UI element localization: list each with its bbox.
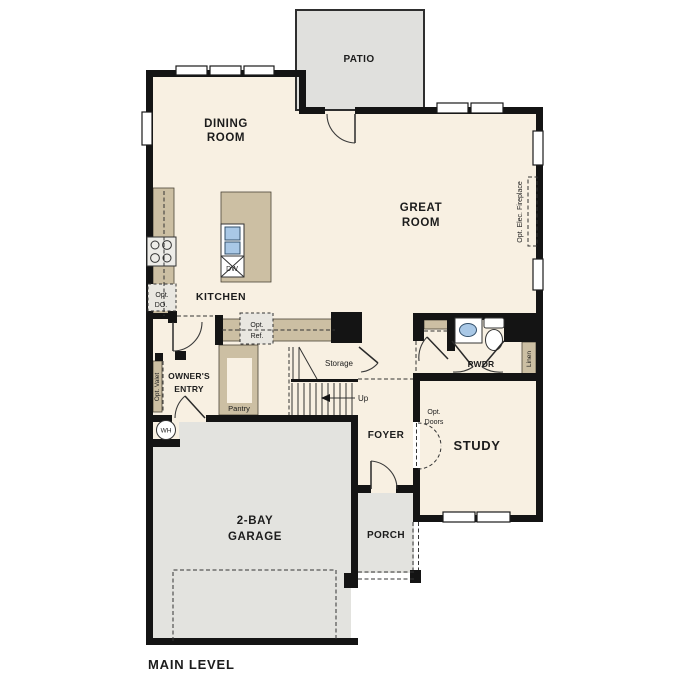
wall-owners-stub-b — [175, 351, 186, 360]
opt-refrigerator-label-2: Ref. — [251, 333, 264, 340]
window — [443, 512, 475, 522]
toilet-bowl-icon — [486, 330, 503, 351]
opt-doors-label-1: Opt. — [427, 409, 440, 416]
wall-garage-top-b — [206, 415, 358, 422]
wall-frontdoor-stub-a — [357, 485, 371, 493]
opt-double-oven-label-1: Opt. — [155, 292, 168, 299]
opt-double-oven-label-2: DO. — [155, 302, 168, 309]
basin-icon — [460, 324, 477, 337]
wall-owners-stub-a — [155, 353, 163, 361]
opt-refrigerator-label-1: Opt. — [250, 322, 263, 329]
wall-frontdoor-stub-b — [396, 485, 414, 493]
plan-level-title: MAIN LEVEL — [148, 657, 235, 672]
wall-powder-right-chunk — [504, 315, 536, 342]
wall-study-left-a — [413, 375, 420, 422]
owners-entry-label-1: OWNER'S — [168, 371, 210, 381]
window — [176, 66, 207, 75]
study-label: STUDY — [453, 438, 500, 453]
floor-plan-drawing: WH — [0, 0, 687, 687]
owners-entry-label-2: ENTRY — [174, 384, 204, 394]
wall-left — [146, 70, 153, 645]
wall-garage-corner — [344, 573, 358, 588]
window — [477, 512, 510, 522]
kitchen-label: KITCHEN — [196, 291, 246, 303]
storage-label: Storage — [325, 359, 354, 368]
stair-nose-wall — [291, 379, 358, 382]
water-heater: WH — [157, 421, 176, 440]
patio-label: PATIO — [343, 54, 374, 65]
up-label: Up — [358, 394, 369, 403]
window — [142, 112, 152, 145]
pantry-label: Pantry — [228, 404, 250, 413]
window — [244, 66, 274, 75]
window — [210, 66, 241, 75]
closet-shelf — [424, 320, 449, 329]
great-room-label-2: ROOM — [402, 217, 440, 229]
floor-plan-page: WH — [0, 0, 687, 687]
great-room-label-1: GREAT — [400, 202, 442, 214]
garage-floor — [153, 422, 351, 638]
wall-garage-right — [351, 415, 358, 588]
opt-valet-label: Opt. Valet — [154, 373, 161, 402]
dining-room-label-2: ROOM — [207, 132, 245, 144]
wall-stair-block — [331, 312, 362, 343]
wall-counter-end — [215, 315, 223, 345]
opt-fireplace-label: Opt. Elec. Fireplace — [517, 181, 524, 243]
wall-closet-powder — [447, 317, 455, 351]
sink-bowl-icon — [225, 242, 240, 254]
garage-label-2: GARAGE — [228, 531, 282, 543]
wall-great-top-a — [299, 107, 325, 114]
dishwasher-label: DW — [226, 266, 238, 273]
wall-study-left-b — [413, 468, 420, 522]
garage-label-1: 2-BAY — [237, 515, 273, 527]
wall-wh-nook — [146, 439, 180, 447]
dining-room-label-1: DINING — [204, 118, 248, 130]
wall-powder-left — [413, 313, 424, 341]
foyer-label: FOYER — [368, 430, 405, 441]
water-heater-label: WH — [161, 428, 172, 435]
window — [533, 259, 543, 290]
wall-powder-bottom — [413, 373, 536, 381]
sink-bowl-icon — [225, 227, 240, 240]
toilet-tank-icon — [484, 318, 504, 328]
wall-garage-bottom — [146, 638, 358, 645]
window — [437, 103, 468, 113]
opt-doors-label-2: Doors — [425, 419, 444, 426]
window — [533, 131, 543, 165]
pantry-interior — [227, 358, 252, 403]
window — [471, 103, 503, 113]
stove-icon — [147, 237, 176, 266]
wall-closet-stub-top — [168, 311, 177, 323]
linen-label: Linen — [526, 351, 533, 367]
porch-label: PORCH — [367, 530, 405, 541]
powder-label: PWDR — [468, 359, 495, 369]
